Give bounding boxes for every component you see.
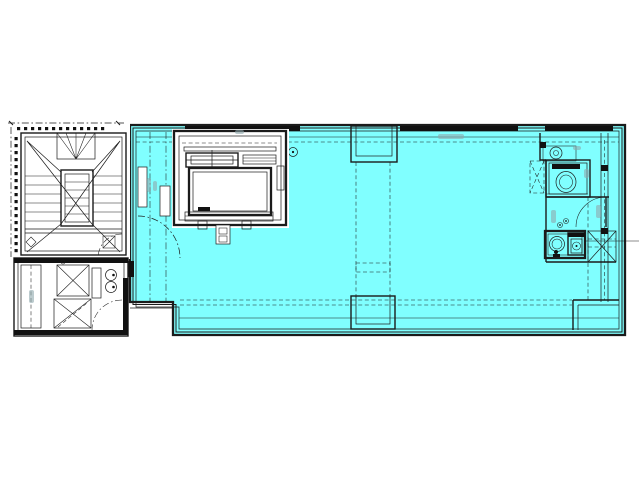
- illegible-label-closet: [29, 290, 34, 303]
- elevator-car: [189, 168, 271, 215]
- illegible-label-washroom-1: [551, 210, 556, 223]
- window-band-center: [400, 126, 518, 131]
- elevator-machine-room: [172, 129, 289, 244]
- wall-band-top: [14, 258, 128, 263]
- window-band-east: [545, 126, 613, 131]
- illegible-label-corridor-1: [147, 178, 151, 192]
- call-button-box: [216, 225, 230, 244]
- illegible-label-toilet: [584, 169, 589, 178]
- illegible-label-machine-room: [235, 130, 244, 134]
- illegible-label-top-center: [438, 134, 464, 139]
- wall-band-bottom: [14, 330, 128, 335]
- floor-plan: [0, 0, 640, 480]
- illegible-label-corridor-2: [153, 181, 157, 191]
- cistern: [552, 164, 580, 169]
- illegible-label-vestibule: [573, 146, 581, 150]
- wall-band-right: [123, 278, 128, 332]
- door-leaf-2: [160, 186, 170, 216]
- stairwell: [8, 121, 130, 259]
- illegible-label-washroom-2: [596, 205, 601, 218]
- door-leaf-1: [138, 167, 147, 207]
- round-fixture-dot: [292, 151, 294, 153]
- floor-plan-canvas: [0, 0, 640, 480]
